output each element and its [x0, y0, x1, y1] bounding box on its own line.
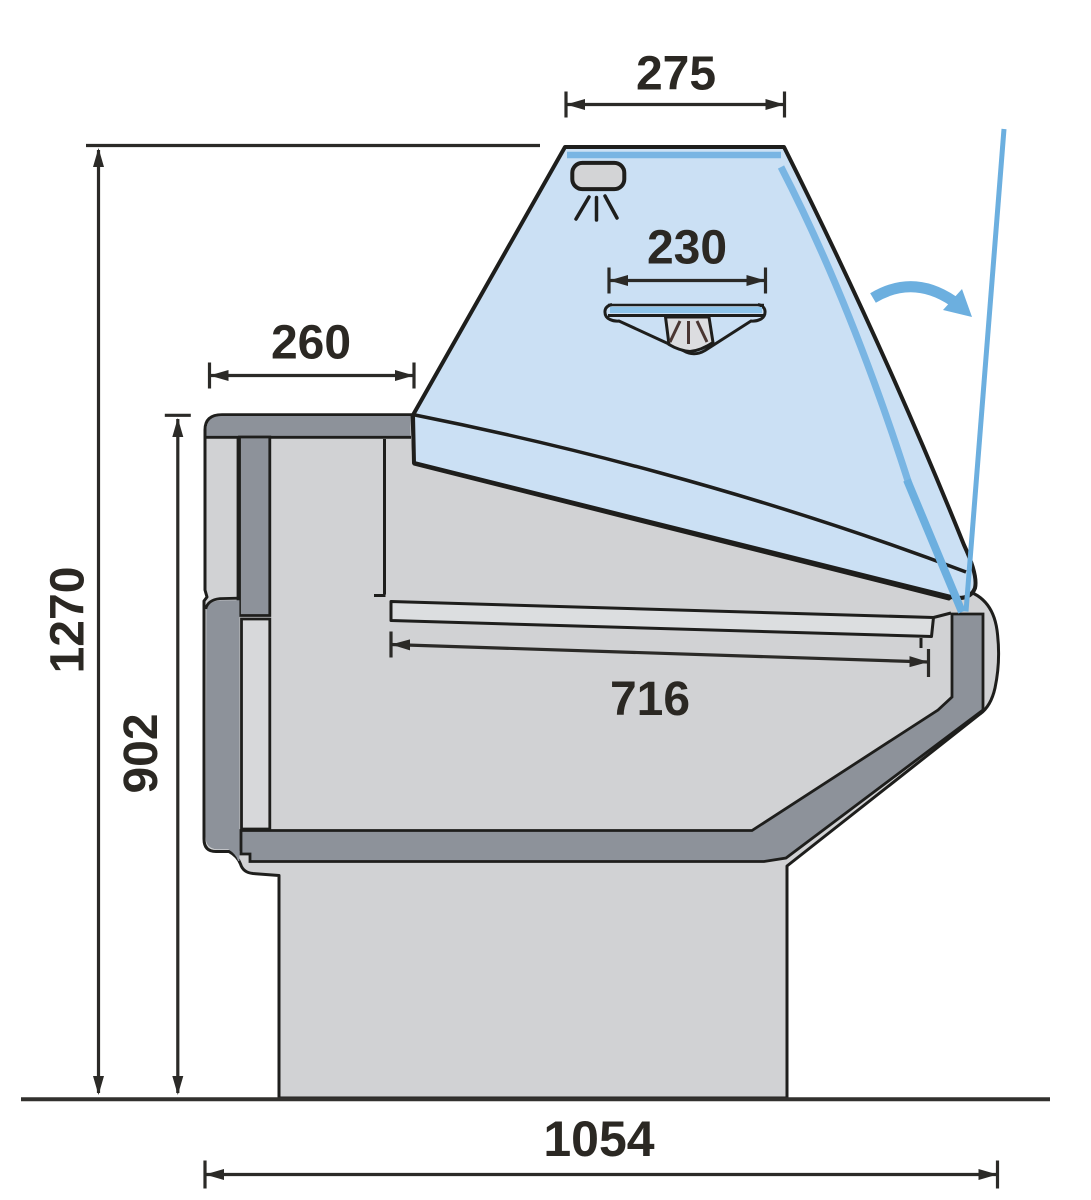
- svg-text:275: 275: [636, 48, 716, 101]
- svg-text:716: 716: [610, 673, 690, 726]
- svg-text:902: 902: [115, 713, 168, 793]
- svg-text:1270: 1270: [42, 567, 95, 674]
- svg-text:260: 260: [271, 317, 351, 370]
- svg-text:1054: 1054: [543, 1111, 654, 1167]
- svg-text:230: 230: [647, 222, 727, 275]
